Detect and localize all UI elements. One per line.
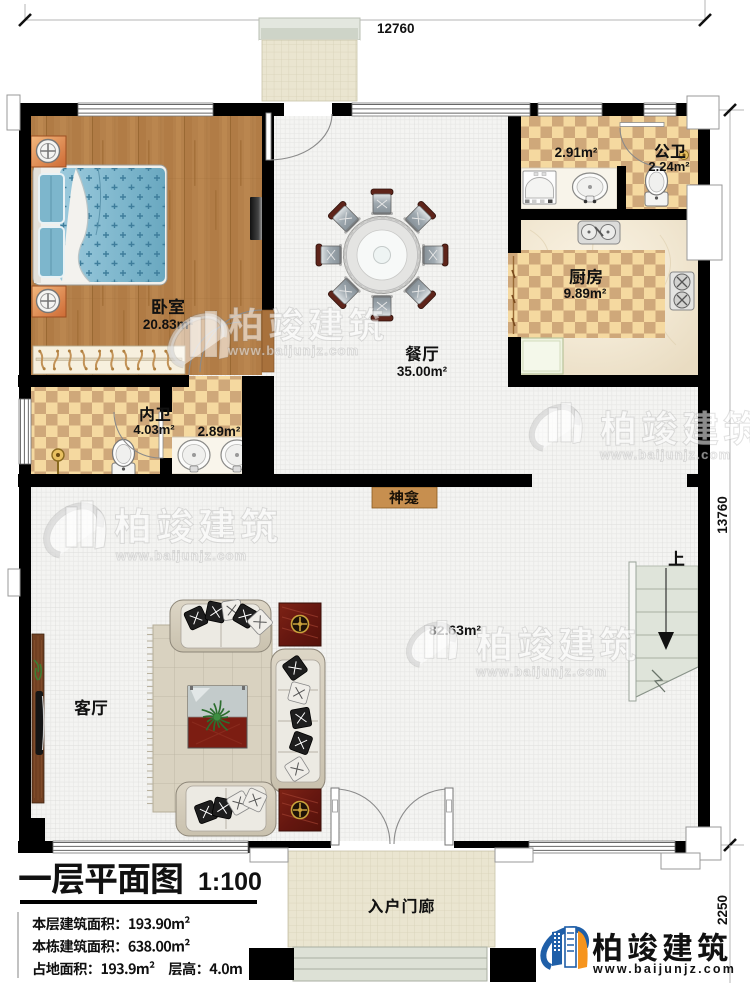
svg-text:2.89m²: 2.89m² <box>198 424 241 439</box>
svg-text:13760: 13760 <box>715 496 730 534</box>
svg-text:2250: 2250 <box>715 895 730 925</box>
svg-text:www.baijunjz.com: www.baijunjz.com <box>227 343 359 358</box>
svg-text:www.baijunjz.com: www.baijunjz.com <box>115 548 247 563</box>
svg-text:12760: 12760 <box>377 21 415 36</box>
svg-text:www.baijunjz.com: www.baijunjz.com <box>599 447 731 462</box>
svg-text:35.00m²: 35.00m² <box>397 364 448 379</box>
svg-text:9.89m²: 9.89m² <box>564 286 607 301</box>
svg-text:1:100: 1:100 <box>198 868 262 896</box>
svg-text:2.24m²: 2.24m² <box>648 159 690 174</box>
svg-text:www.baijunjz.com: www.baijunjz.com <box>592 962 736 976</box>
svg-text:2.91m²: 2.91m² <box>555 145 598 160</box>
svg-text:www.baijunjz.com: www.baijunjz.com <box>475 664 607 679</box>
svg-text:4.03m²: 4.03m² <box>133 422 175 437</box>
